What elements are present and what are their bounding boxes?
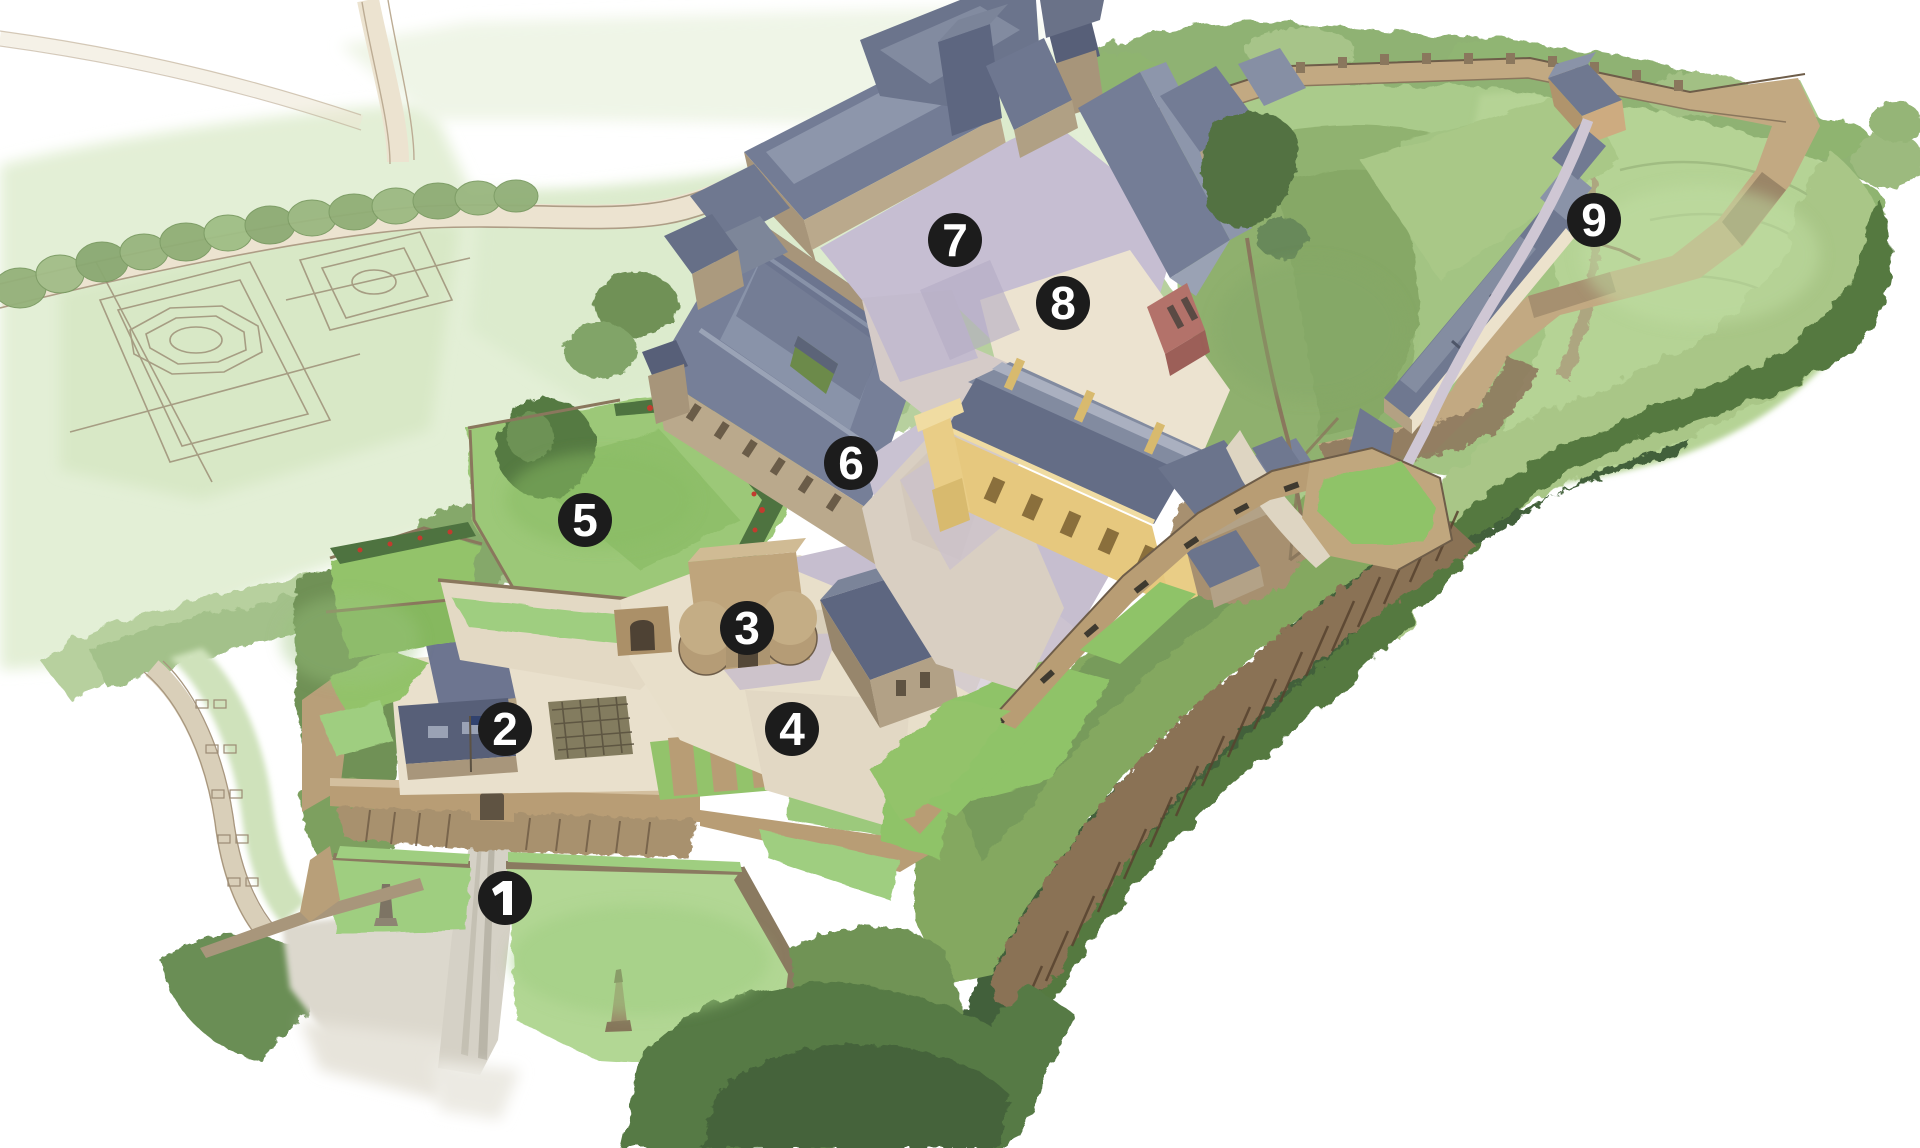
svg-text:2: 2 bbox=[492, 703, 518, 755]
svg-text:7: 7 bbox=[942, 214, 968, 266]
svg-text:5: 5 bbox=[572, 494, 598, 546]
svg-text:8: 8 bbox=[1050, 277, 1076, 329]
svg-text:9: 9 bbox=[1581, 194, 1607, 246]
svg-text:4: 4 bbox=[779, 703, 805, 755]
svg-text:3: 3 bbox=[734, 602, 760, 654]
svg-text:6: 6 bbox=[838, 437, 864, 489]
